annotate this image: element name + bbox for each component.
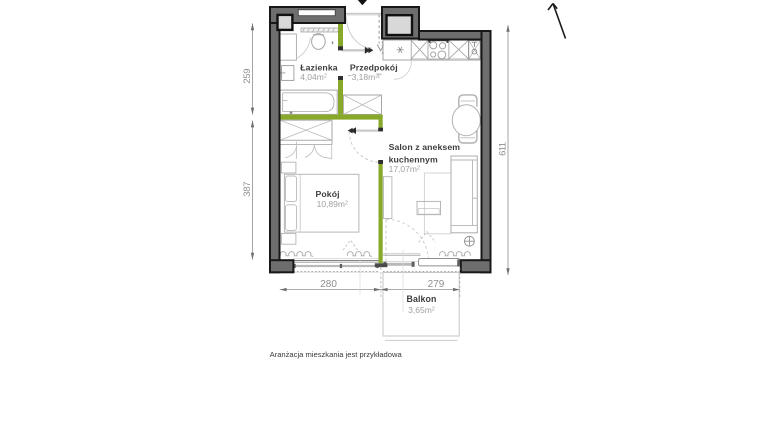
svg-text:387: 387 — [242, 182, 253, 197]
svg-text:259: 259 — [242, 69, 253, 84]
svg-text:280: 280 — [320, 279, 337, 290]
svg-text:17,07m2: 17,07m2 — [389, 164, 420, 174]
svg-text:4,04m2: 4,04m2 — [300, 72, 327, 82]
svg-text:kuchennym: kuchennym — [389, 154, 438, 164]
svg-text:Balkon: Balkon — [407, 294, 437, 304]
svg-text:10,89m2: 10,89m2 — [317, 199, 348, 209]
svg-text:3,65m2: 3,65m2 — [408, 305, 435, 315]
svg-text:Salon z aneksem: Salon z aneksem — [389, 142, 461, 152]
svg-text:279: 279 — [428, 279, 445, 290]
svg-text:Aranżacja mieszkania jest przy: Aranżacja mieszkania jest przykładowa — [270, 350, 403, 359]
svg-text:611: 611 — [498, 142, 509, 156]
svg-text:Pokój: Pokój — [316, 189, 340, 199]
svg-text:3,18m2: 3,18m2 — [352, 72, 379, 82]
